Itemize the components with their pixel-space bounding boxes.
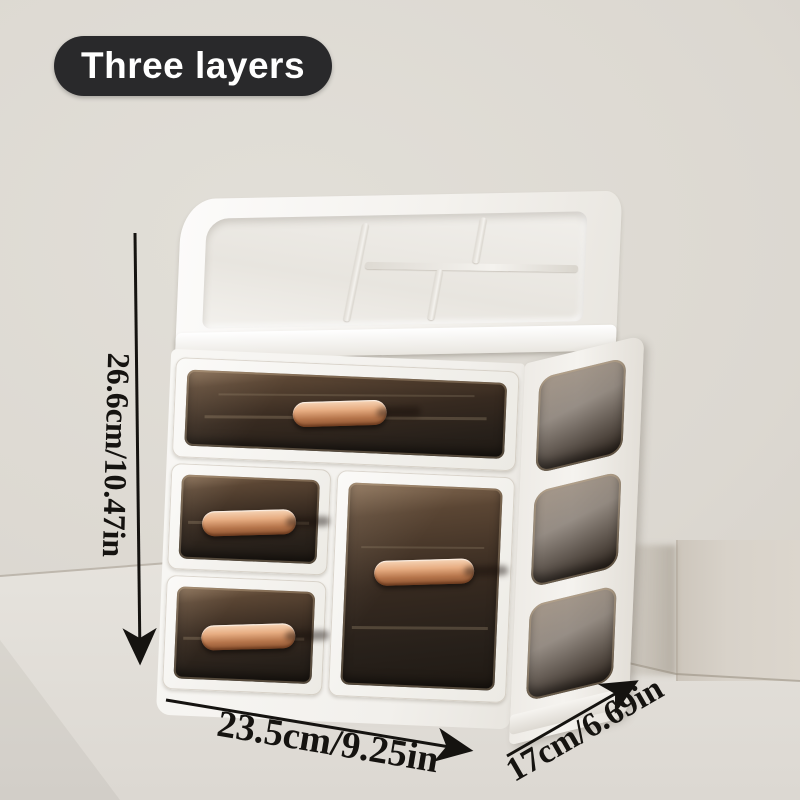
drawer-cabinet-front	[156, 349, 525, 730]
drawer-handle-tall-right[interactable]	[374, 558, 475, 586]
drawer-interior-line	[362, 546, 485, 549]
badge-label: Three layers	[81, 45, 305, 86]
cabinet-side-panel	[509, 335, 644, 746]
top-tray	[175, 191, 622, 355]
storage-organizer	[155, 199, 657, 749]
tray-divider	[343, 222, 369, 321]
drawer-handle-middle-left[interactable]	[202, 509, 297, 537]
drawer-glass-tall-right	[340, 482, 502, 690]
three-layers-badge: Three layers	[54, 36, 332, 96]
product-photo-scene: Three layers 26.6cm/10.47in 23.5cm/9.25i…	[0, 0, 800, 800]
side-window-bottom	[526, 585, 617, 702]
tray-divider	[427, 269, 443, 320]
tray-divider	[472, 218, 487, 265]
height-dimension-label: 26.6cm/10.47in	[95, 352, 137, 557]
right-wall-corner	[676, 540, 800, 681]
tray-divider	[364, 261, 577, 271]
drawer-handle-top[interactable]	[292, 400, 387, 428]
drawer-handle-bottom-left[interactable]	[201, 623, 296, 651]
top-tray-interior	[202, 211, 587, 328]
side-window-middle	[531, 471, 622, 588]
glass-reflection	[340, 482, 465, 690]
side-window-top	[535, 357, 626, 474]
